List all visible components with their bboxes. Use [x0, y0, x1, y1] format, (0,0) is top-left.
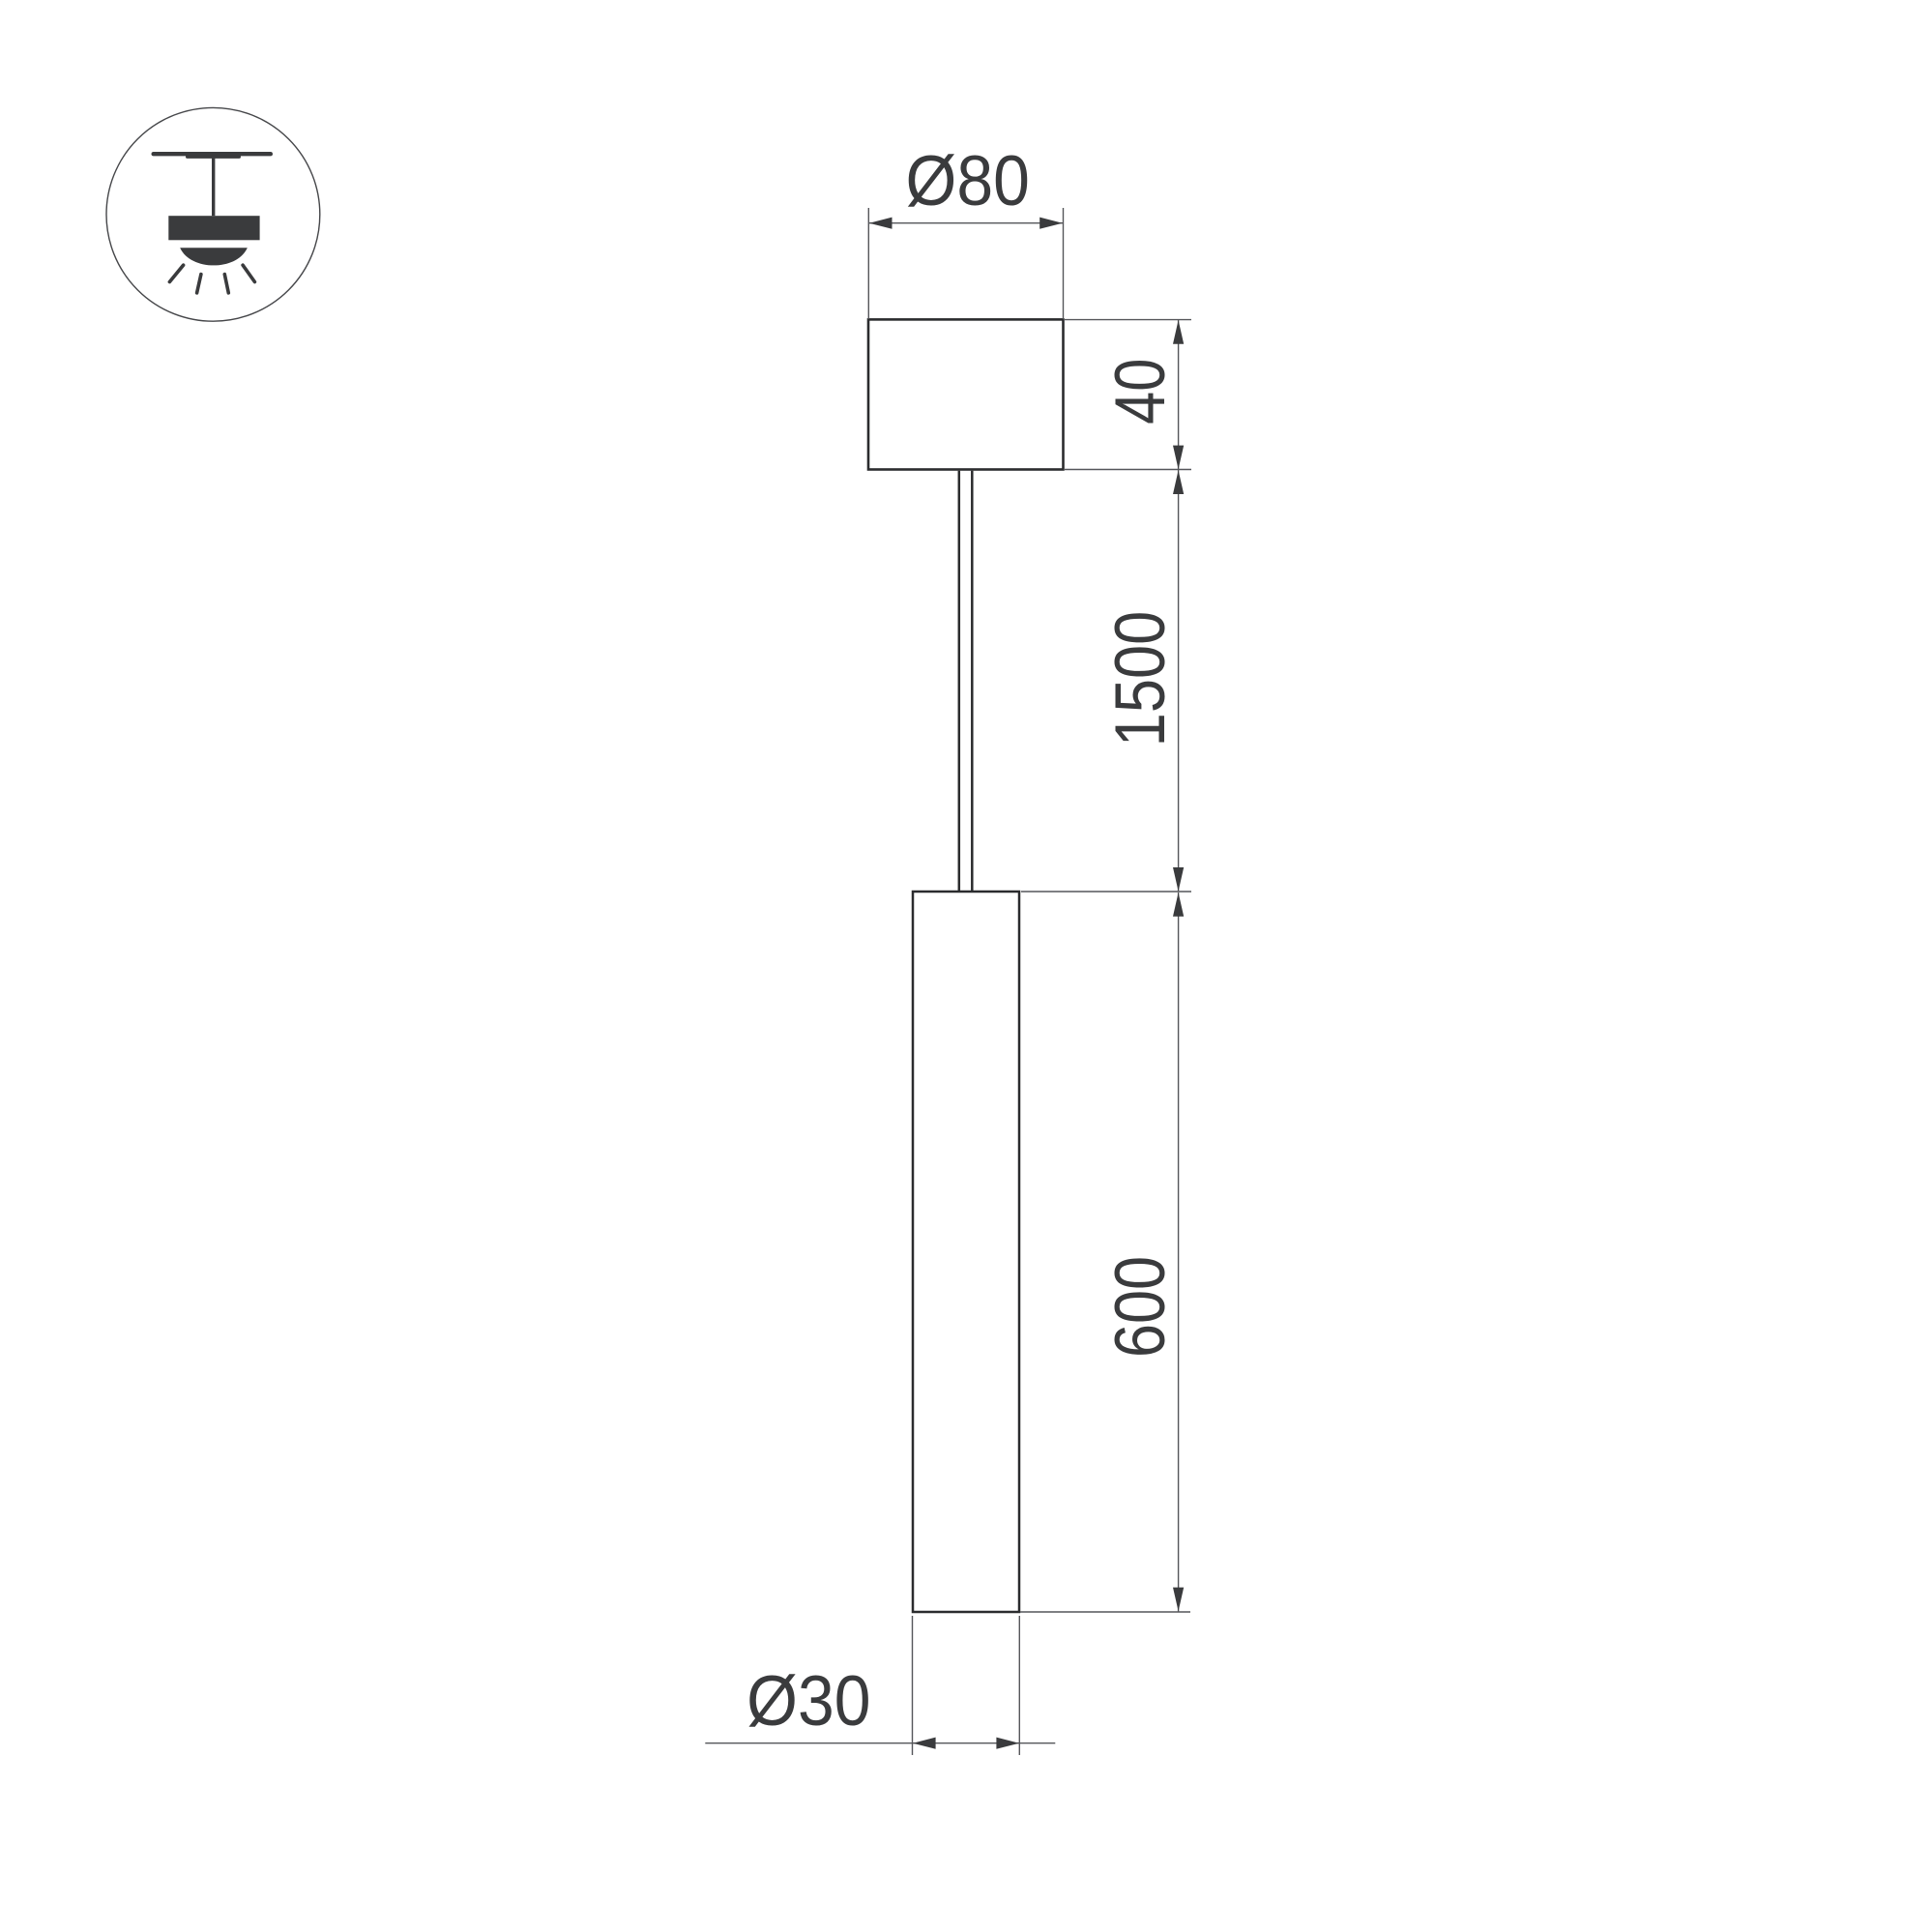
svg-text:Ø80: Ø80	[906, 141, 1030, 220]
svg-text:600: 600	[1101, 1256, 1180, 1358]
svg-text:40: 40	[1101, 359, 1180, 424]
svg-text:Ø30: Ø30	[746, 1661, 870, 1741]
svg-text:1500: 1500	[1101, 611, 1180, 746]
